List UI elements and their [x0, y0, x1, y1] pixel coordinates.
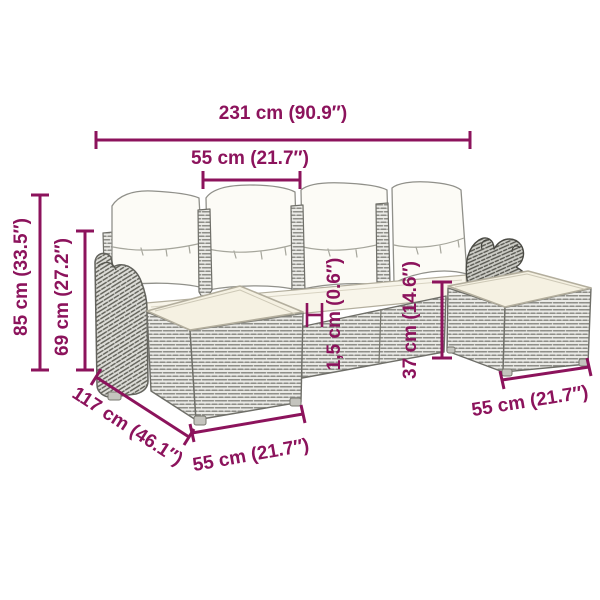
dimension-diagram: 231 cm (90.9″) 55 cm (21.7″) 85 cm (33.5…	[0, 0, 600, 600]
dim-label-seat-height: 37 cm (14.6″)	[400, 261, 422, 379]
left-ottoman-front-face	[190, 313, 303, 420]
foot	[290, 398, 301, 406]
foot	[194, 416, 206, 425]
sofa-dimension-graphic	[0, 0, 600, 600]
dim-label-seat-width: 55 cm (21.7″)	[191, 148, 309, 170]
back-strap-1	[198, 209, 212, 302]
foot	[502, 369, 512, 376]
dim-label-back-height: 69 cm (27.2″)	[52, 238, 74, 356]
back-pillow-2	[206, 185, 298, 290]
dim-label-cushion-thickness: 1,5 cm (0.6″)	[324, 258, 346, 371]
foot	[447, 347, 455, 353]
left-ottoman	[147, 286, 303, 420]
right-ottoman	[447, 271, 591, 372]
dim-line-total-height	[31, 195, 49, 370]
dim-label-overall-width: 231 cm (90.9″)	[219, 103, 347, 125]
dim-line-overall-width	[96, 131, 470, 149]
dim-label-total-height: 85 cm (33.5″)	[11, 218, 33, 336]
dim-line-back-height	[76, 231, 94, 370]
